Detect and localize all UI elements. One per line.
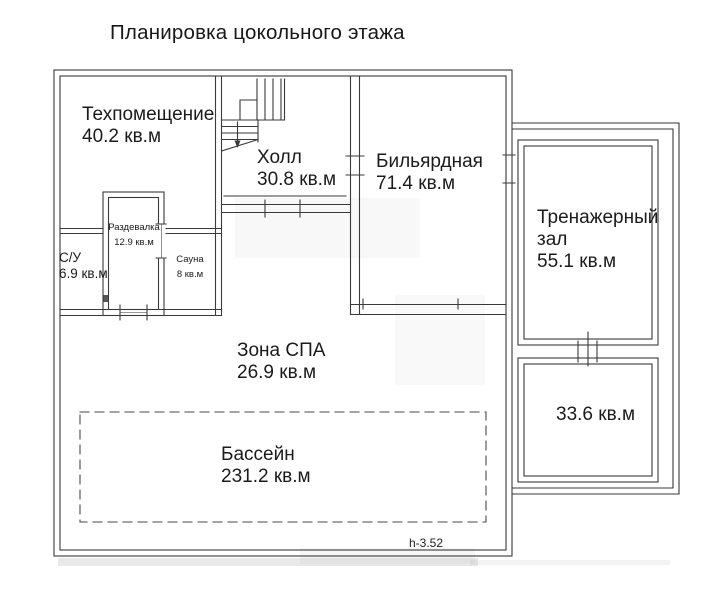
room-area: 6.9 кв.м [59,266,108,282]
room-area: 33.6 кв.м [556,404,635,426]
room-area: 26.9 кв.м [237,362,325,384]
staircase [222,79,285,151]
ceiling-height-note: h-3.52 [409,536,443,550]
room-label-spa: Зона СПА 26.9 кв.м [237,340,325,384]
room-area: 8 кв.м [170,268,210,281]
room-label-wc: С/У 6.9 кв.м [59,250,108,282]
room-name: Тренажерный зал [537,207,667,251]
room-name: Зона СПА [237,340,325,362]
room-area: 30.8 кв.м [257,169,336,191]
room-label-pool: Бассейн 231.2 кв.м [221,444,311,488]
room-name: С/У [59,250,108,266]
room-name: Бильярдная [376,151,483,173]
room-area: 40.2 кв.м [82,126,214,148]
room-label-gym: Тренажерный зал 55.1 кв.м [537,207,667,273]
stair-down-arrow [235,122,241,148]
room-area: 55.1 кв.м [537,251,667,273]
room-area: 12.9 кв.м [106,236,162,249]
room-name: Холл [257,147,336,169]
room-label-dressing: Раздевалка 12.9 кв.м [106,221,162,249]
room-name: Бассейн [221,444,311,466]
room-name: Техпомещение [82,104,214,126]
room-label-sauna: Сауна 8 кв.м [170,253,210,281]
room-label-hall: Холл 30.8 кв.м [257,147,336,191]
floor-plan-page: Планировка цокольного этажа [0,0,703,600]
room-label-33-6: 33.6 кв.м [556,404,635,426]
room-name: Раздевалка [106,221,162,234]
room-name: Сауна [170,253,210,266]
room-area: 231.2 кв.м [221,466,311,488]
room-label-billiard: Бильярдная 71.4 кв.м [376,151,483,195]
floor-plan-drawing [0,0,703,600]
room-area: 71.4 кв.м [376,173,483,195]
room-label-tech: Техпомещение 40.2 кв.м [82,104,214,148]
